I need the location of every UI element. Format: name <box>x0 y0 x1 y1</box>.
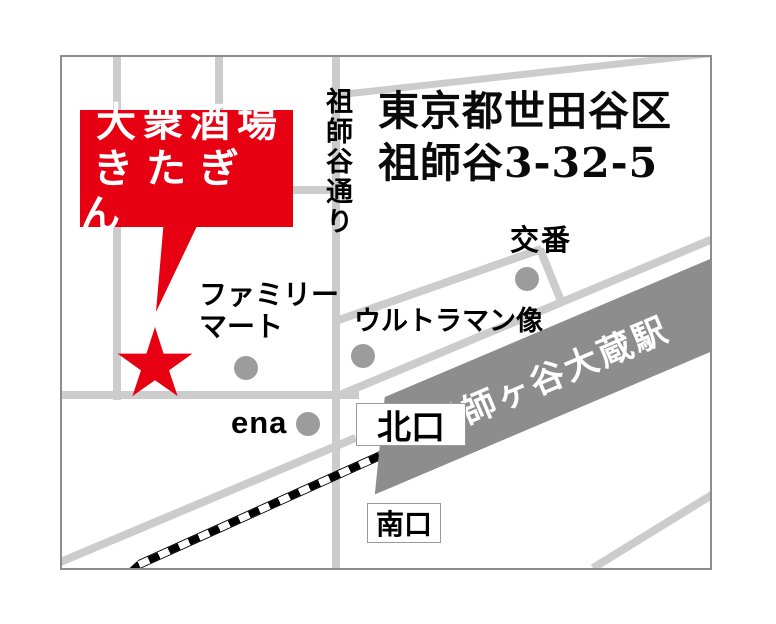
road-diagonal-bottom-left <box>60 434 357 567</box>
familymart-label-line1: ファミリー <box>199 279 339 311</box>
ena-dot-icon <box>296 412 320 436</box>
soshigaya-dori-label: 祖師谷通り <box>318 87 357 237</box>
ena-label: ena <box>231 405 287 441</box>
north-exit-box: 北口 <box>356 403 466 446</box>
shop-name-line2: きたぎん <box>80 146 293 238</box>
south-exit-box: 南口 <box>367 503 441 543</box>
road-diagonal-bottom-right <box>591 489 712 570</box>
ultraman-dot-icon <box>351 344 375 368</box>
address-text: 東京都世田谷区 祖師谷3-32-5 <box>378 85 672 190</box>
address-line2: 祖師谷3-32-5 <box>378 137 672 189</box>
north-exit-label: 北口 <box>377 400 445 449</box>
familymart-label: ファミリー マート <box>199 279 339 343</box>
shop-name-line1: 大衆酒場 <box>89 100 284 146</box>
ultraman-label: ウルトラマン像 <box>354 306 543 337</box>
familymart-label-line2: マート <box>199 311 339 343</box>
railway-line <box>126 451 383 570</box>
familymart-dot-icon <box>234 356 258 380</box>
koban-dot-icon <box>515 267 539 291</box>
access-map: 祖師ヶ谷大蔵駅 北口 南口 交番 ファミリー マート ウルトラマン像 ena 祖… <box>60 55 712 570</box>
callout-pointer-icon <box>156 226 197 312</box>
south-exit-label: 南口 <box>376 503 432 543</box>
road-horizontal-main <box>62 391 359 399</box>
shop-callout: 大衆酒場 きたぎん <box>80 110 293 227</box>
address-line1: 東京都世田谷区 <box>378 85 672 137</box>
koban-label: 交番 <box>510 225 572 258</box>
